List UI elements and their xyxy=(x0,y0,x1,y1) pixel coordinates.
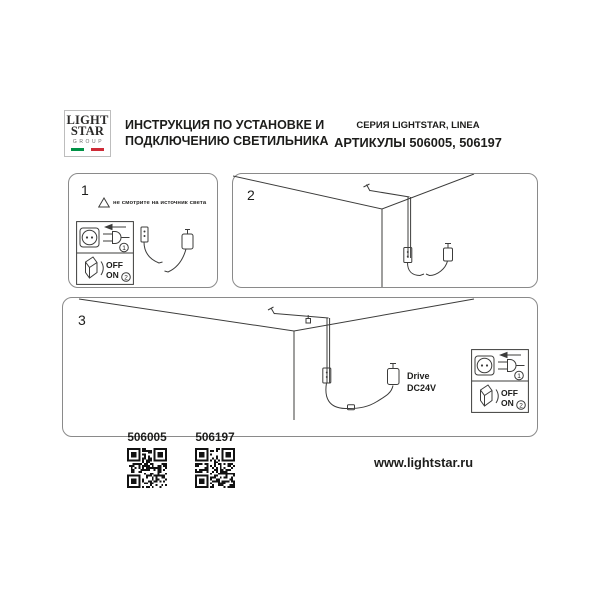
power-adapter-icon xyxy=(165,230,194,273)
svg-text:1: 1 xyxy=(122,245,126,252)
room-corner-lines xyxy=(233,174,474,287)
cable-and-adapter-drawing xyxy=(135,222,217,286)
track-profile-icon xyxy=(364,184,411,258)
driver-label-line1: Drive xyxy=(407,371,430,381)
product-info: СЕРИЯ LIGHTSTAR, LINEA АРТИКУЛЫ 506005, … xyxy=(332,120,504,150)
svg-text:2: 2 xyxy=(124,275,128,282)
page-title-line1: ИНСТРУКЦИЯ ПО УСТАНОВКЕ И xyxy=(125,118,329,134)
power-pictogram-box: 1 OFF ON 2 xyxy=(471,349,529,413)
svg-text:2: 2 xyxy=(519,403,523,410)
step-3-panel: 3 xyxy=(62,297,538,437)
qr-block-506197: 506197 xyxy=(186,430,244,493)
mounting-clip-icon xyxy=(306,319,311,324)
qr-code xyxy=(195,448,235,488)
mounting-hook-icon xyxy=(364,184,371,191)
page-title-line2: ПОДКЛЮЧЕНИЮ СВЕТИЛЬНИКА xyxy=(125,134,329,150)
warning-triangle-icon xyxy=(98,197,110,208)
room-corner-drawing-step2 xyxy=(233,174,537,287)
qr-block-506005: 506005 xyxy=(118,430,176,493)
logo-word-star: STAR xyxy=(65,126,110,137)
pictogram-step-1-badge: 1 xyxy=(120,243,129,252)
on-label: ON xyxy=(106,270,119,280)
track-connector-icon xyxy=(141,227,163,263)
logo-word-group: GROUP xyxy=(65,139,110,145)
switch-icon xyxy=(86,257,104,278)
switch-icon xyxy=(481,385,499,406)
flag-green-segment xyxy=(71,148,84,151)
room-corner-lines xyxy=(79,299,474,420)
pictogram-step-1-badge: 1 xyxy=(515,371,524,380)
svg-text:1: 1 xyxy=(517,373,521,380)
track-profile-icon xyxy=(268,307,330,383)
plug-icon xyxy=(103,224,130,244)
series-label: СЕРИЯ LIGHTSTAR, LINEA xyxy=(332,120,504,131)
adapter-plug-icon xyxy=(426,244,453,276)
room-corner-drawing-step3: Drive DC24V xyxy=(63,298,537,436)
warning-text: не смотрите на источник света xyxy=(113,200,206,206)
articles-label: АРТИКУЛЫ 506005, 506197 xyxy=(332,135,504,150)
italian-flag-bar xyxy=(71,148,104,151)
step-1-number: 1 xyxy=(81,182,89,198)
off-label: OFF xyxy=(106,260,123,270)
instruction-sheet: LIGHT STAR GROUP ИНСТРУКЦИЯ ПО УСТАНОВКЕ… xyxy=(0,0,600,600)
flag-red-segment xyxy=(91,148,104,151)
mounting-hook-icon xyxy=(268,307,275,314)
off-label: OFF xyxy=(501,388,518,398)
pictogram-step-2-badge: 2 xyxy=(122,273,131,282)
pictogram-step-2-badge: 2 xyxy=(517,401,526,410)
warning-note: не смотрите на источник света xyxy=(98,197,206,208)
qr-label: 506197 xyxy=(186,430,244,444)
driver-label-line2: DC24V xyxy=(407,383,436,393)
power-pictogram-box: 1 OFF ON 2 xyxy=(76,221,134,285)
socket-icon xyxy=(475,356,494,375)
page-title: ИНСТРУКЦИЯ ПО УСТАНОВКЕ И ПОДКЛЮЧЕНИЮ СВ… xyxy=(125,118,329,149)
socket-icon xyxy=(80,228,99,247)
connection-cable xyxy=(326,383,393,410)
unplug-and-switch-pictogram: 1 OFF ON 2 xyxy=(76,221,134,285)
power-adapter-icon xyxy=(388,364,400,385)
on-label: ON xyxy=(501,398,514,408)
plug-icon xyxy=(498,352,525,372)
plug-and-switch-pictogram: 1 OFF ON 2 xyxy=(471,349,529,413)
qr-code xyxy=(127,448,167,488)
website-url: www.lightstar.ru xyxy=(374,455,473,470)
lightstar-logo: LIGHT STAR GROUP xyxy=(64,110,111,157)
qr-label: 506005 xyxy=(118,430,176,444)
step-2-panel: 2 xyxy=(232,173,538,288)
flag-white-segment xyxy=(84,148,91,151)
step-1-panel: 1 не смотрите на источник света xyxy=(68,173,218,288)
track-connector-icon xyxy=(404,248,424,276)
